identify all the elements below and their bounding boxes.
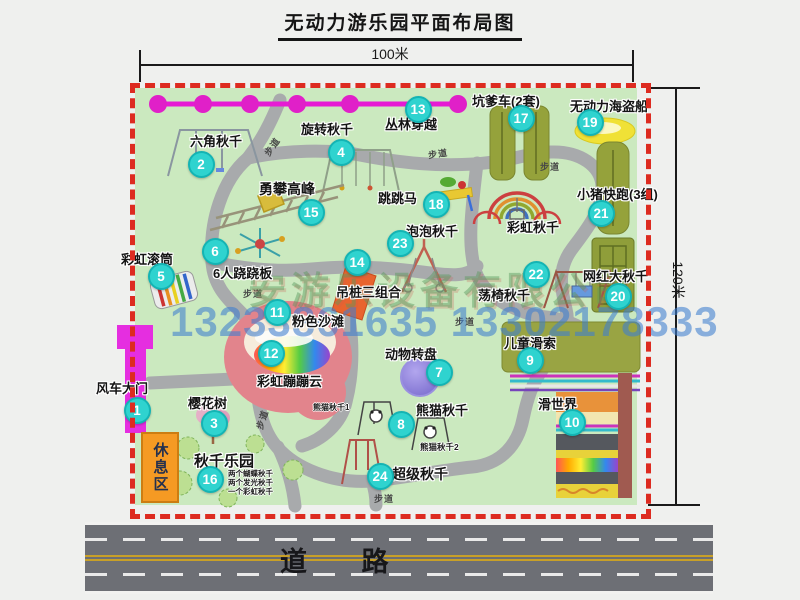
attraction-14-badge: 14 [344, 249, 371, 276]
dimension-height-label: 120米 [668, 250, 688, 310]
attraction-12-label: 彩虹蹦蹦云 [257, 371, 322, 390]
attraction-11-label: 粉色沙滩 [292, 311, 344, 330]
dimension-width-label: 100米 [340, 44, 440, 64]
attraction-18-label: 跳跳马 [378, 188, 417, 207]
attraction-18-badge: 18 [423, 191, 450, 218]
watermark-phone: 13233861635 13302178333 [170, 298, 719, 346]
attraction-23-label: 泡泡秋千 [406, 221, 458, 240]
attraction-24-label: 超级秋千 [392, 464, 448, 484]
footpath-label-2: 步道 [427, 146, 449, 162]
attraction-3-label: 樱花树 [188, 393, 227, 412]
attraction-17-badge: 17 [508, 105, 535, 132]
attraction-8-label: 熊猫秋千 [416, 400, 468, 419]
attraction-2-label: 六角秋千 [190, 131, 242, 150]
attraction-8-badge: 8 [388, 411, 415, 438]
attraction-16-sublabel-3: 一个彩虹秋千 [228, 486, 273, 497]
attraction-12-badge: 12 [258, 340, 285, 367]
attraction-20-label: 网红大秋千 [583, 266, 648, 285]
attraction-22-badge: 22 [523, 261, 550, 288]
attraction-22-label: 荡椅秋千 [478, 285, 530, 304]
footpath-label-7: 步道 [374, 492, 394, 505]
attraction-20-badge: 20 [605, 283, 632, 310]
attraction-15-badge: 15 [298, 199, 325, 226]
attraction-11-badge: 11 [264, 299, 291, 326]
attraction-6-label: 6人跷跷板 [213, 263, 272, 282]
attraction-14-label: 吊桩三组合 [336, 282, 401, 301]
attraction-10-badge: 10 [559, 409, 586, 436]
attraction-7-badge: 7 [426, 359, 453, 386]
footpath-label-3: 步道 [540, 160, 560, 173]
attraction-16-badge: 16 [197, 466, 224, 493]
attraction-7-label: 动物转盘 [385, 344, 437, 363]
slide-world-icon [556, 373, 632, 498]
map-title: 无动力游乐园平面布局图 [0, 8, 800, 41]
attraction-1-badge: 1 [124, 397, 151, 424]
seesaw-icon [235, 228, 285, 258]
rest-zone-label: 休息区 [150, 442, 171, 493]
attraction-4-badge: 4 [328, 139, 355, 166]
attraction-2-badge: 2 [188, 151, 215, 178]
attraction-13-badge: 13 [405, 96, 432, 123]
attraction-1-label: 风车大门 [96, 378, 148, 397]
attraction-19-badge: 19 [577, 109, 604, 136]
rest-zone: 休息区 [141, 432, 179, 503]
playground-layout-figure: 无动力游乐园平面布局图 100米 120米 [0, 0, 800, 600]
attraction-3-badge: 3 [201, 410, 228, 437]
rainbow-swing-label: 彩虹秋千 [507, 217, 559, 236]
attraction-6-badge: 6 [202, 238, 229, 265]
attraction-5-badge: 5 [148, 263, 175, 290]
attraction-4-label: 旋转秋千 [301, 119, 353, 138]
attraction-21-label: 小猪快跑(3组) [577, 184, 658, 203]
attraction-23-badge: 23 [387, 230, 414, 257]
attraction-21-badge: 21 [588, 200, 615, 227]
attraction-8-sublabel-2: 熊猫秋千2 [420, 441, 459, 453]
attraction-15-label: 勇攀高峰 [259, 179, 315, 199]
attraction-24-badge: 24 [367, 463, 394, 490]
attraction-8-sublabel-1: 熊猫秋千1 [313, 402, 349, 413]
attraction-9-badge: 9 [517, 347, 544, 374]
